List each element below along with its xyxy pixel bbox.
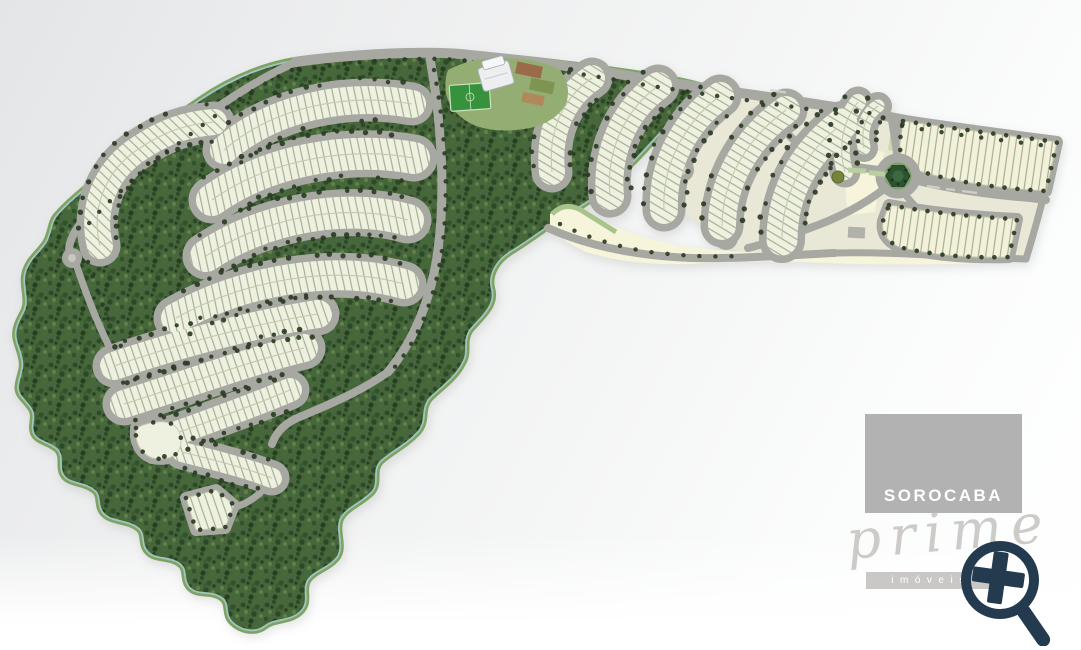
paved-area [848,227,866,239]
roundabout [881,159,915,193]
magnifier-plus-icon[interactable] [948,526,1066,646]
site-plan-image: SOROCABA prime imóveis [0,0,1081,650]
clubhouse-area [445,54,568,130]
mini-roundabout [832,171,844,183]
